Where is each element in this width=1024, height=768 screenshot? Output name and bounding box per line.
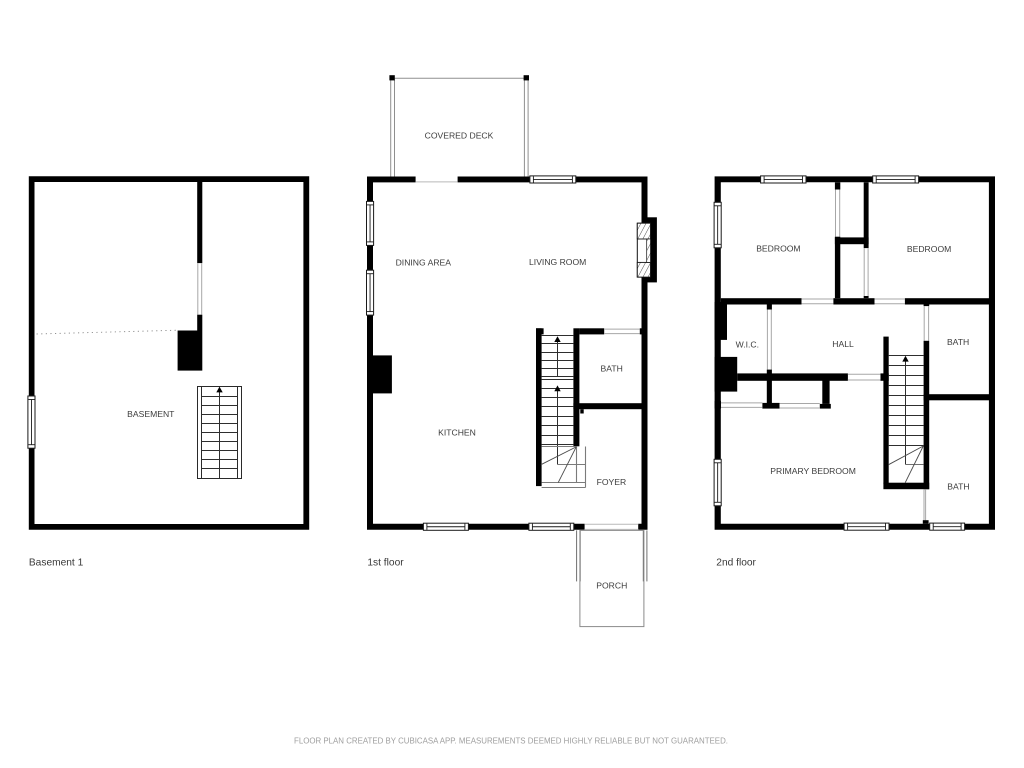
svg-text:FOYER: FOYER xyxy=(597,477,627,487)
svg-text:KITCHEN: KITCHEN xyxy=(438,428,476,438)
svg-text:BASEMENT: BASEMENT xyxy=(127,409,175,419)
svg-text:PRIMARY BEDROOM: PRIMARY BEDROOM xyxy=(770,466,856,476)
svg-text:BEDROOM: BEDROOM xyxy=(907,244,951,254)
svg-text:Basement 1: Basement 1 xyxy=(29,558,84,569)
svg-text:W.I.C.: W.I.C. xyxy=(736,340,759,350)
svg-text:FLOOR PLAN CREATED BY CUBICASA: FLOOR PLAN CREATED BY CUBICASA APP. MEAS… xyxy=(294,737,728,746)
svg-text:LIVING ROOM: LIVING ROOM xyxy=(529,257,586,267)
svg-text:BATH: BATH xyxy=(601,363,623,373)
svg-text:PORCH: PORCH xyxy=(596,580,627,590)
svg-text:COVERED DECK: COVERED DECK xyxy=(425,131,494,141)
svg-text:2nd floor: 2nd floor xyxy=(716,558,756,569)
svg-text:BATH: BATH xyxy=(947,337,969,347)
svg-text:BEDROOM: BEDROOM xyxy=(756,243,800,253)
svg-text:HALL: HALL xyxy=(832,339,854,349)
svg-text:1st floor: 1st floor xyxy=(367,558,404,569)
svg-text:DINING AREA: DINING AREA xyxy=(396,258,452,268)
svg-text:BATH: BATH xyxy=(947,482,969,492)
